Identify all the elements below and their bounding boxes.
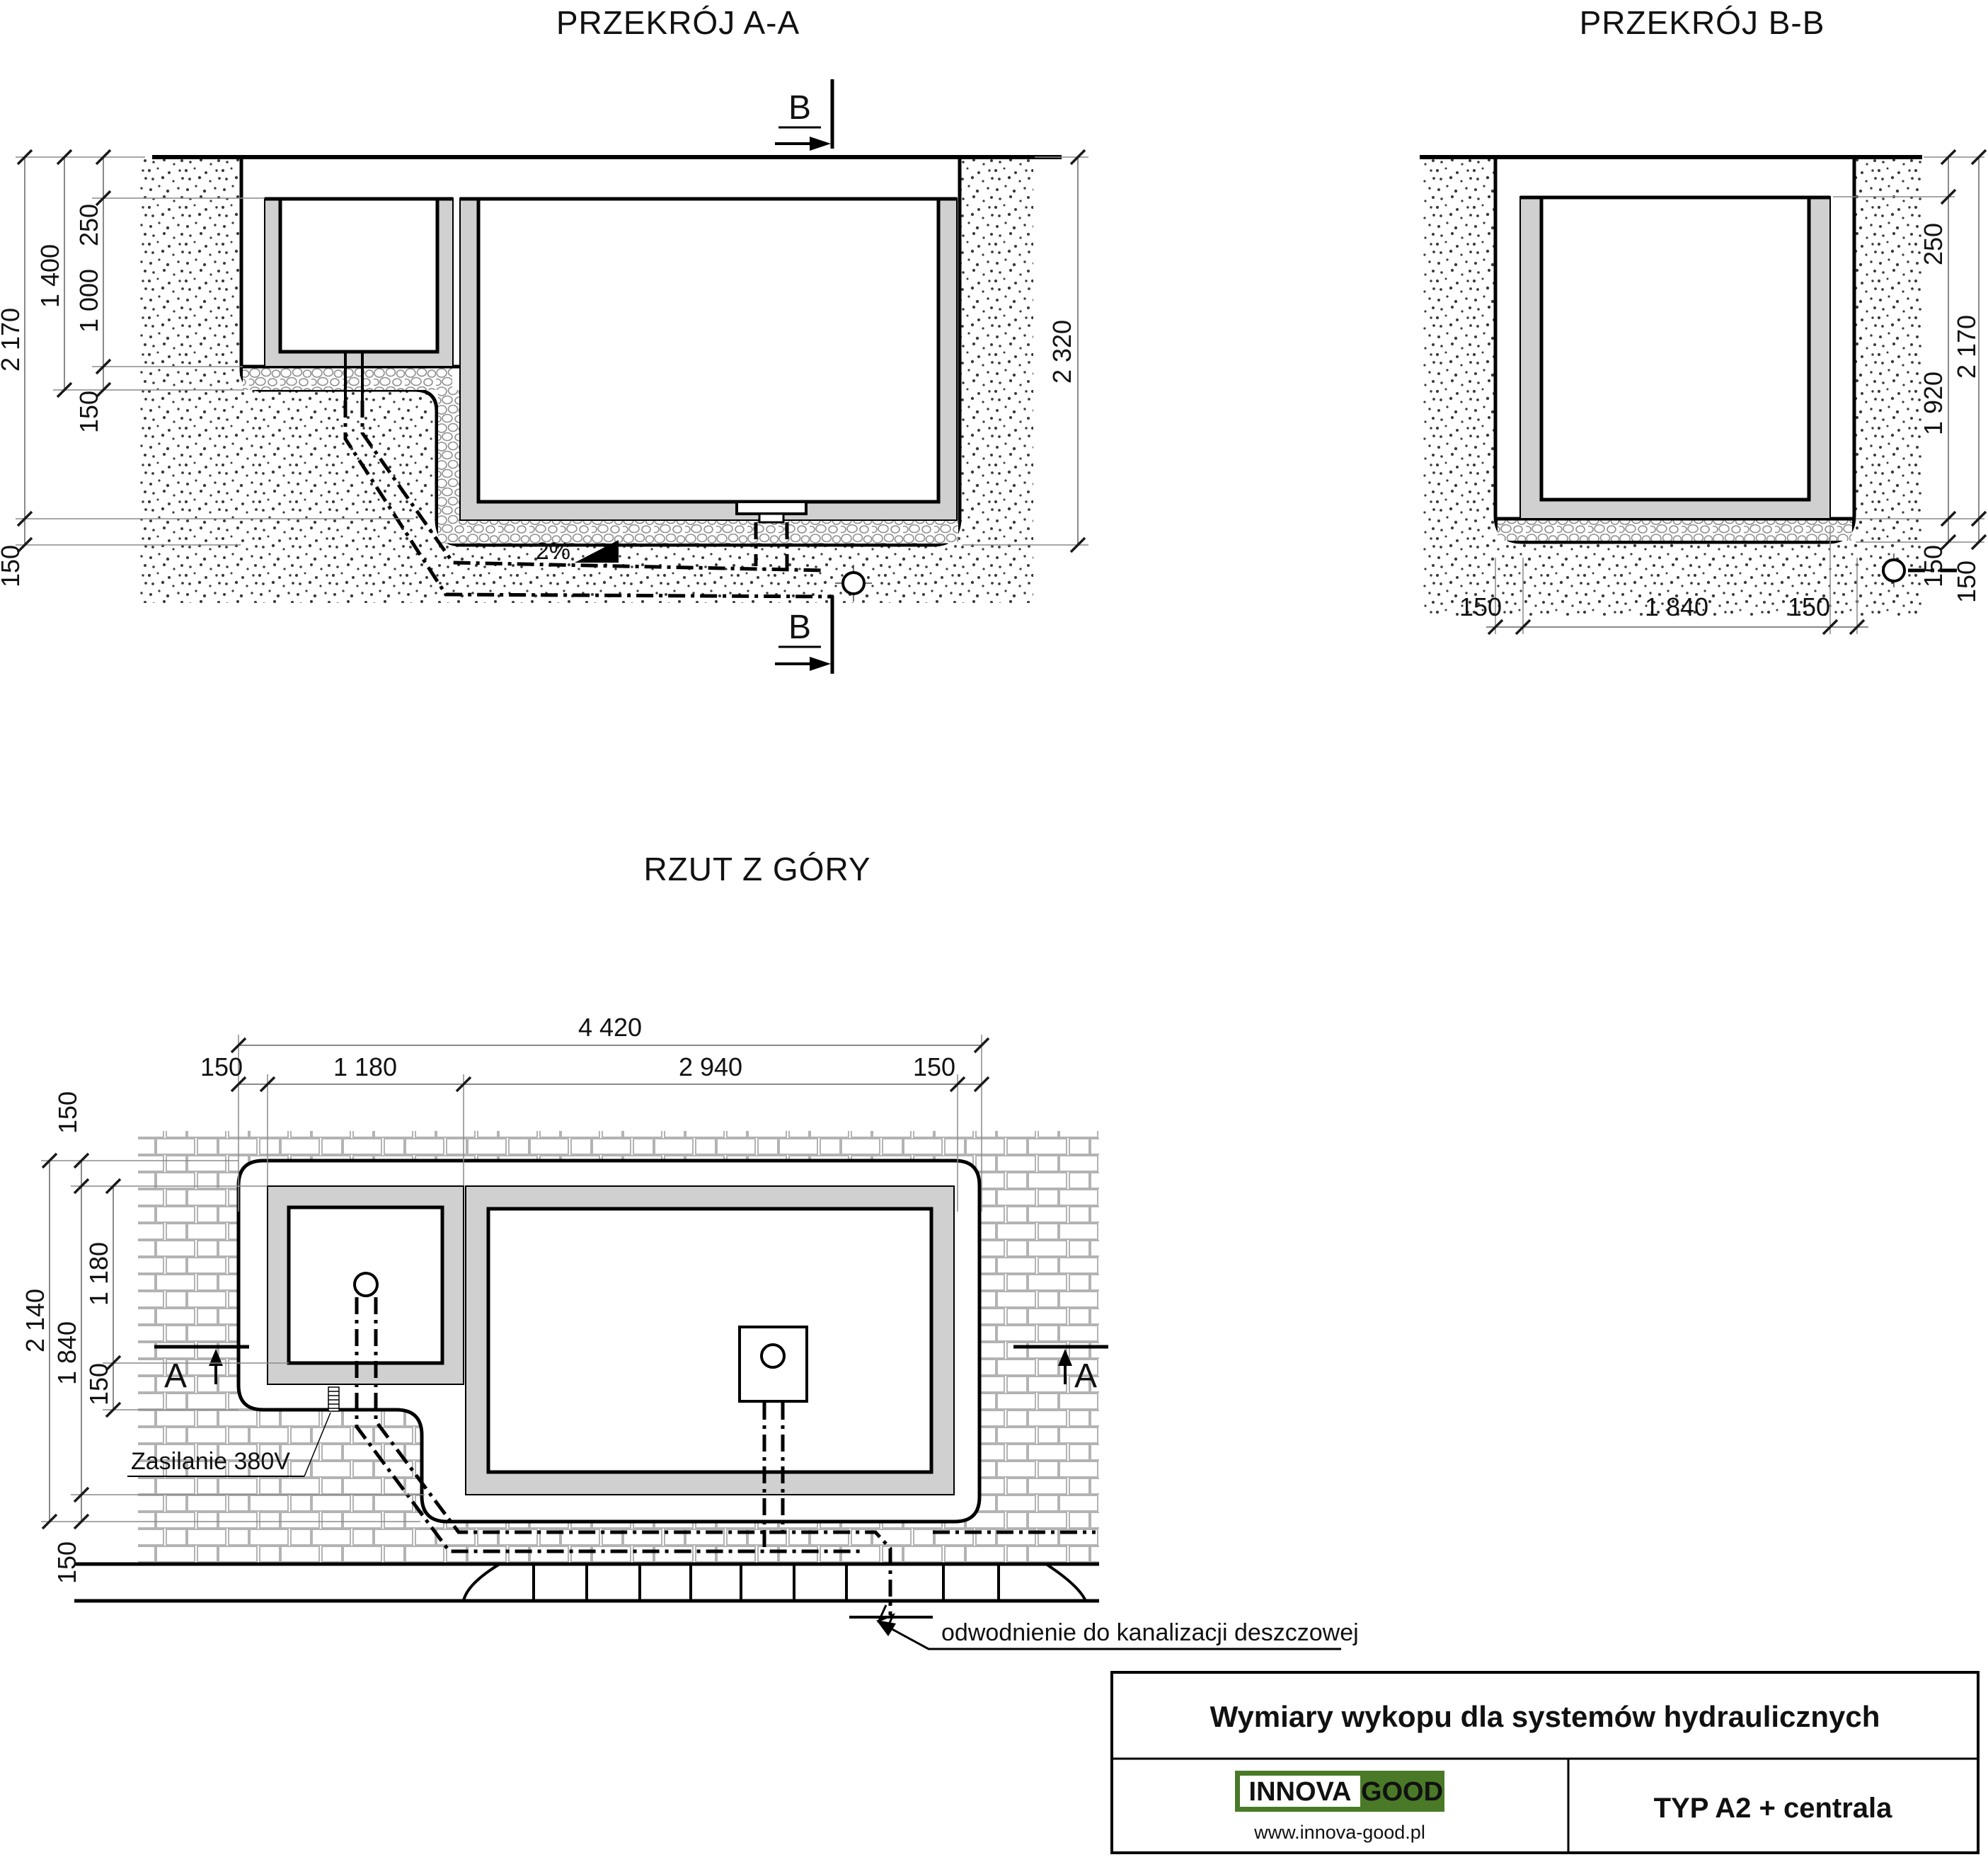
main-tank-plan — [466, 1186, 954, 1495]
dim-2170-bb: 2 170 — [1952, 315, 1981, 379]
drainage-callout: odwodnienie do kanalizacji deszczowej — [849, 1605, 1359, 1649]
tank-section-bb — [1520, 197, 1830, 519]
dim-150-bottom: 150 — [0, 545, 25, 587]
technical-drawing: PRZEKRÓJ A-A — [0, 0, 1988, 1862]
section-bb-title: PRZEKRÓJ B-B — [1580, 4, 1825, 41]
dim-150-left-mid: 150 — [84, 1363, 113, 1406]
brand-left-text: INNOVA — [1249, 1777, 1352, 1807]
dim-1840-bb: 1 840 — [1645, 592, 1708, 621]
dim-150-bottom-right: 150 — [1788, 592, 1830, 621]
type-label: TYP A2 + centrala — [1654, 1793, 1893, 1824]
marker-letter: A — [1074, 1357, 1097, 1395]
sump-notch — [737, 502, 806, 514]
dim-1180-top: 1 180 — [333, 1052, 397, 1081]
arrow-icon — [876, 1620, 896, 1636]
marker-letter: B — [788, 609, 811, 646]
dim-1840-plan: 1 840 — [52, 1321, 81, 1385]
dim-4420: 4 420 — [578, 1013, 642, 1042]
brand-right-text: GOOD — [1361, 1777, 1443, 1807]
curb-band — [74, 1564, 1099, 1601]
brand-website: www.innova-good.pl — [1253, 1822, 1425, 1843]
power-conduit — [328, 1387, 339, 1411]
marker-letter: B — [788, 89, 811, 127]
arrow-icon — [810, 137, 831, 151]
main-tank-section — [460, 198, 957, 522]
dim-150-bottom-left: 150 — [1459, 592, 1502, 621]
dim-1920: 1 920 — [1919, 372, 1948, 435]
dim-150-top-left: 150 — [200, 1052, 243, 1081]
plan-title: RZUT Z GÓRY — [643, 851, 871, 887]
dim-1000: 1 000 — [74, 269, 103, 333]
dim-2940: 2 940 — [679, 1052, 742, 1081]
dim-150-top-right: 150 — [913, 1052, 955, 1081]
dim-250-bb: 250 — [1919, 223, 1948, 265]
dim-1180-left: 1 180 — [84, 1242, 113, 1306]
drawing-sheet: PRZEKRÓJ A-A — [0, 0, 1988, 1862]
plan-view: RZUT Z GÓRY — [21, 851, 1359, 1649]
power-label: Zasilanie 380V — [131, 1448, 290, 1475]
dim-150-outer: 150 — [1952, 561, 1981, 603]
small-tank-plan — [268, 1186, 464, 1384]
gravel-bed-main-tank — [439, 520, 958, 544]
section-marker-b-top: B — [775, 79, 832, 151]
dim-2140: 2 140 — [21, 1289, 50, 1352]
plan-top-dim-labels: 4 420 150 1 180 2 940 150 — [200, 1013, 955, 1081]
dim-150-left-top: 150 — [53, 1091, 82, 1134]
dim-150-left-bottom: 150 — [52, 1541, 81, 1584]
dim-2170: 2 170 — [0, 308, 25, 372]
title-block: Wymiary wykopu dla systemów hydrauliczny… — [1112, 1672, 1978, 1853]
pipe-opening-icon — [355, 1273, 377, 1296]
dim-1400: 1 400 — [35, 244, 64, 308]
dim-150-inner: 150 — [1919, 545, 1948, 587]
section-marker-b-bottom: B — [775, 596, 832, 674]
gravel-bed-bb — [1498, 519, 1852, 541]
sump-stem — [759, 514, 783, 522]
brand-logo: INNOVA GOOD — [1235, 1771, 1444, 1812]
dim-2320: 2 320 — [1047, 320, 1076, 384]
section-bb: PRZEKRÓJ B-B — [1420, 4, 1986, 634]
slope-label: 2% — [536, 538, 570, 565]
arrow-icon — [810, 657, 831, 671]
drain-opening-icon — [762, 1345, 784, 1367]
dim-250: 250 — [74, 204, 103, 246]
section-aa: PRZEKRÓJ A-A — [0, 4, 1088, 674]
section-aa-title: PRZEKRÓJ A-A — [556, 4, 800, 41]
gravel-bed-small-tank — [243, 367, 452, 390]
drainage-label: odwodnienie do kanalizacji deszczowej — [941, 1619, 1359, 1646]
title-block-heading: Wymiary wykopu dla systemów hydrauliczny… — [1210, 1700, 1880, 1733]
dim-150-gravel: 150 — [74, 391, 103, 433]
plan-left-dim-labels: 150 2 140 1 840 1 180 150 150 — [21, 1091, 113, 1584]
